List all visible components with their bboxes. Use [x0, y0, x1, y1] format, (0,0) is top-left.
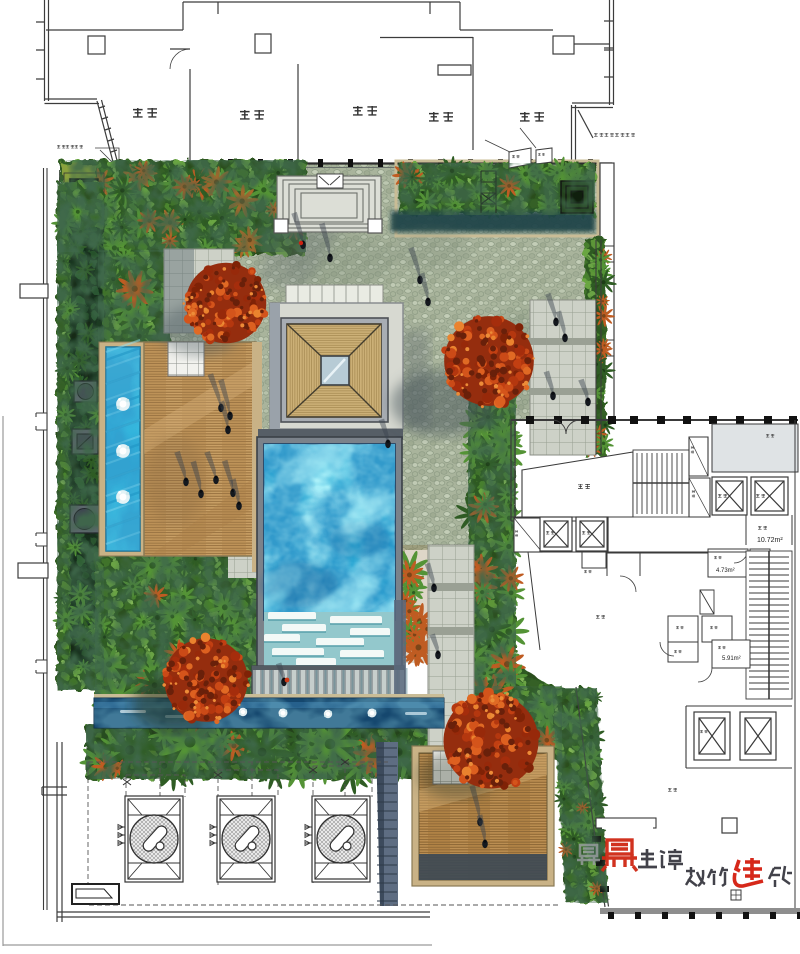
- svg-text:5.91m²: 5.91m²: [722, 656, 741, 662]
- svg-text:4.73m²: 4.73m²: [716, 568, 735, 574]
- svg-text:10.72m²: 10.72m²: [757, 537, 783, 544]
